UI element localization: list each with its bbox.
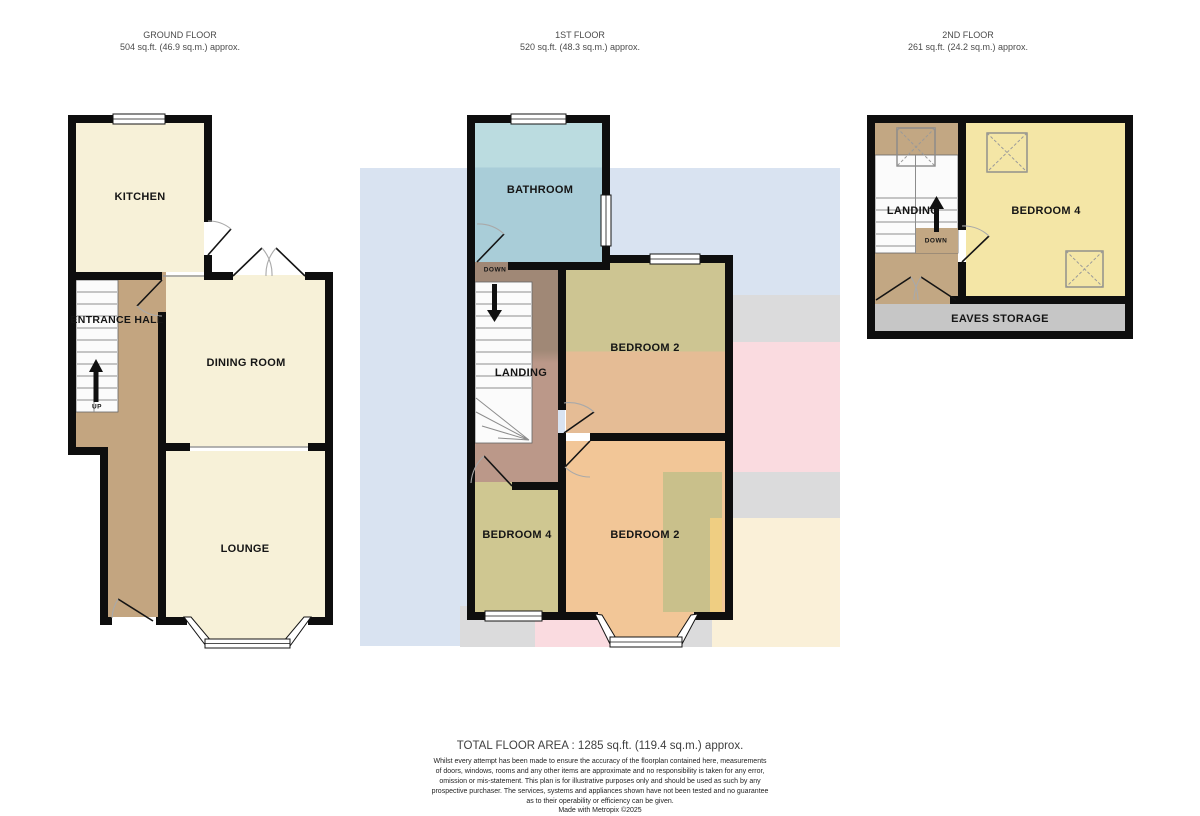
second-floor-header: 2ND FLOOR 261 sq.ft. (24.2 sq.m.) approx… (908, 29, 1028, 53)
room-label-bedroom4-first: BEDROOM 4 (482, 529, 551, 541)
disclaimer-line: of doors, windows, rooms and any other i… (436, 767, 765, 777)
credit-line: Made with Metropix ©2025 (558, 806, 641, 816)
room-label-eaves-storage: EAVES STORAGE (951, 313, 1049, 325)
room-label-bedroom2-bottom: BEDROOM 2 (610, 529, 679, 541)
disclaimer-line: Whilst every attempt has been made to en… (433, 757, 766, 767)
first-floor-header: 1ST FLOOR 520 sq.ft. (48.3 sq.m.) approx… (520, 29, 640, 53)
room-label-landing-second: LANDING (887, 205, 939, 217)
room-label-dining-room: DINING ROOM (206, 357, 285, 369)
second-floor-title: 2ND FLOOR (908, 29, 1028, 41)
room-label-bedroom2-top: BEDROOM 2 (610, 342, 679, 354)
room-label-landing-first: LANDING (495, 367, 547, 379)
disclaimer-line: prospective purchaser. The services, sys… (432, 787, 769, 797)
label-down-first: DOWN (484, 267, 507, 274)
first-floor-stairs (475, 282, 532, 443)
second-floor-area: 261 sq.ft. (24.2 sq.m.) approx. (908, 41, 1028, 53)
first-floor-area: 520 sq.ft. (48.3 sq.m.) approx. (520, 41, 640, 53)
ground-floor-header: GROUND FLOOR 504 sq.ft. (46.9 sq.m.) app… (120, 29, 240, 53)
label-down-second: DOWN (925, 238, 948, 245)
room-label-lounge: LOUNGE (221, 543, 270, 555)
total-floor-area: TOTAL FLOOR AREA : 1285 sq.ft. (119.4 sq… (457, 740, 744, 752)
lounge-area (166, 451, 325, 617)
first-floor-title: 1ST FLOOR (520, 29, 640, 41)
room-label-bathroom: BATHROOM (507, 184, 573, 196)
room-label-kitchen: KITCHEN (115, 191, 166, 203)
floorplan-page: GROUND FLOOR 504 sq.ft. (46.9 sq.m.) app… (0, 0, 1200, 816)
room-label-bedroom4-second: BEDROOM 4 (1011, 205, 1080, 217)
label-up: UP (92, 404, 102, 411)
ground-floor-plan (68, 114, 333, 648)
room-label-entrance-hall: ENTRANCE HALL (70, 314, 163, 326)
ground-floor-title: GROUND FLOOR (120, 29, 240, 41)
disclaimer-line: omission or mis-statement. This plan is … (439, 777, 760, 787)
ground-floor-area: 504 sq.ft. (46.9 sq.m.) approx. (120, 41, 240, 53)
floorplan-canvas (0, 0, 1200, 816)
second-floor-plan (867, 115, 1133, 339)
